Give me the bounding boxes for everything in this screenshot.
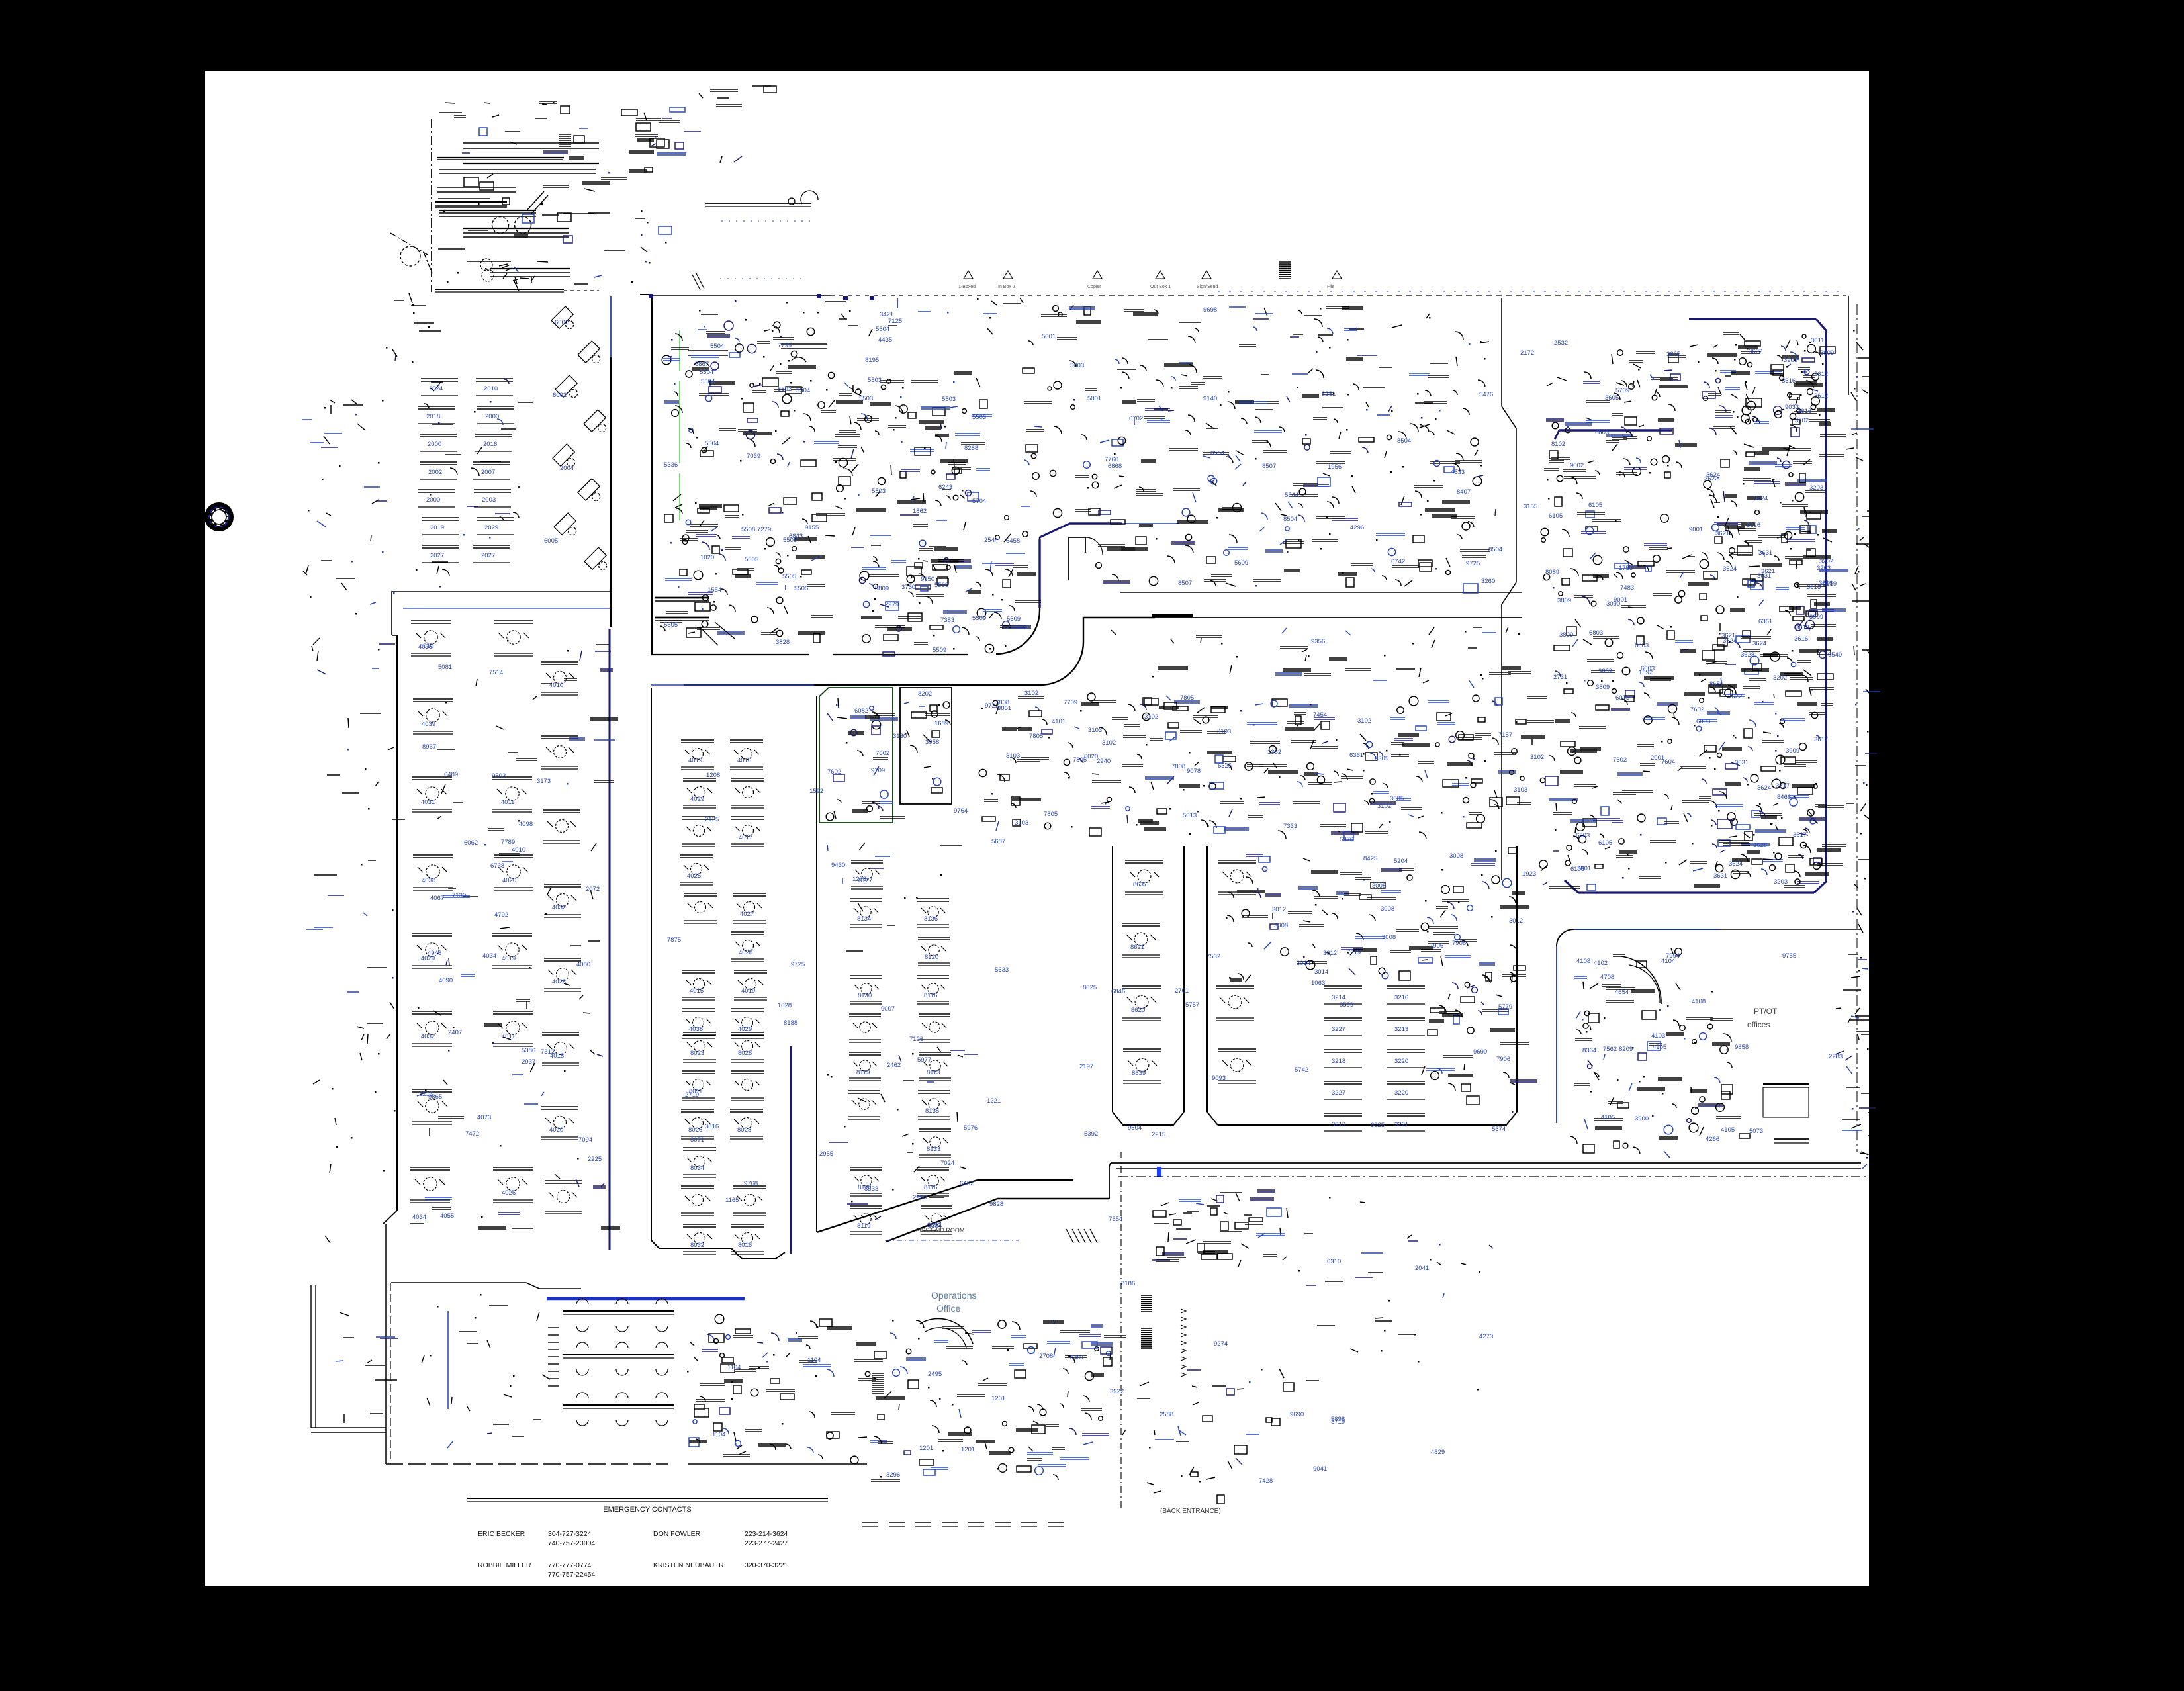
svg-text:4020: 4020 [549,1126,563,1134]
svg-text:Office: Office [936,1303,961,1314]
svg-text:9033: 9033 [1785,404,1799,411]
svg-text:3809: 3809 [1559,631,1573,639]
svg-text:7039: 7039 [747,453,760,460]
svg-text:5509: 5509 [934,582,948,589]
svg-text:3617: 3617 [1796,624,1809,631]
svg-text:4101: 4101 [1052,718,1066,725]
svg-text:5392: 5392 [1084,1130,1098,1138]
svg-text:7906: 7906 [1452,940,1466,947]
svg-text:5503: 5503 [859,395,873,402]
svg-text:1862: 1862 [913,508,927,515]
svg-text:7805: 7805 [1029,733,1043,740]
svg-text:8102: 8102 [1551,441,1565,448]
svg-text:offices: offices [1747,1020,1770,1029]
svg-text:8188: 8188 [784,1019,797,1027]
svg-text:320-370-3221: 320-370-3221 [745,1561,788,1569]
svg-text:PT/OT: PT/OT [1754,1007,1778,1016]
svg-text:9502: 9502 [492,772,506,780]
svg-text:7532: 7532 [1206,953,1220,960]
svg-text:3102: 3102 [1377,803,1391,810]
svg-text:7906: 7906 [1496,1056,1510,1063]
svg-text:4031: 4031 [421,799,435,806]
svg-text:5073: 5073 [1749,1128,1763,1135]
svg-text:4105: 4105 [1601,1114,1615,1121]
svg-text:3909: 3909 [1809,614,1823,621]
svg-text:9690: 9690 [1290,1411,1304,1418]
svg-text:3809: 3809 [1596,684,1610,691]
svg-text:ROBBIE MILLER: ROBBIE MILLER [478,1561,531,1569]
svg-text:1020: 1020 [700,554,714,561]
svg-text:9828: 9828 [989,1201,1003,1208]
svg-text:6489: 6489 [444,771,458,778]
svg-text:3605: 3605 [1666,351,1680,358]
svg-text:5509: 5509 [1007,616,1021,623]
svg-text:6105: 6105 [1549,512,1563,520]
svg-text:2027: 2027 [430,552,444,559]
svg-text:9140: 9140 [1203,395,1217,402]
svg-text:8120: 8120 [925,954,938,961]
svg-text:4019: 4019 [502,955,516,962]
svg-text:6003: 6003 [1635,642,1649,649]
svg-text:8533: 8533 [864,1185,878,1193]
svg-text:3220: 3220 [1394,1089,1408,1097]
svg-text:2937: 2937 [522,1058,535,1066]
svg-text:7483: 7483 [1620,584,1634,592]
svg-text:3624: 3624 [1706,471,1720,479]
svg-text:9690: 9690 [1473,1048,1487,1056]
svg-text:3103: 3103 [1514,786,1527,794]
svg-text:6846: 6846 [1111,988,1125,995]
svg-text:7554: 7554 [1109,1216,1122,1223]
svg-text:EMERGENCY CONTACTS: EMERGENCY CONTACTS [603,1506,691,1514]
svg-text:304-727-3224: 304-727-3224 [548,1530,592,1538]
svg-text:5504: 5504 [705,440,719,447]
svg-text:3103: 3103 [1088,727,1102,734]
svg-text:3624: 3624 [1754,495,1768,502]
svg-text:5742: 5742 [1295,1066,1308,1074]
svg-text:9002: 9002 [1570,462,1584,469]
svg-text:9504: 9504 [1128,1124,1142,1132]
svg-text:3014: 3014 [1297,960,1310,967]
svg-text:1063: 1063 [1311,980,1325,987]
svg-text:7799: 7799 [778,342,792,349]
svg-text:4019: 4019 [688,757,702,764]
svg-text:3809: 3809 [1598,668,1612,675]
svg-text:7219: 7219 [1347,949,1361,956]
svg-text:7428: 7428 [1259,1477,1273,1485]
svg-text:4015: 4015 [690,987,704,995]
svg-text:6803: 6803 [1595,429,1609,436]
svg-text:4533: 4533 [1451,469,1465,476]
svg-text:6843: 6843 [789,533,803,540]
svg-text:8364: 8364 [1582,1047,1596,1054]
svg-text:4105: 4105 [1721,1126,1735,1134]
svg-text:3616: 3616 [1794,635,1808,643]
svg-text:3828: 3828 [776,639,790,646]
svg-text:3103: 3103 [1006,753,1020,760]
svg-text:6868: 6868 [1108,463,1122,470]
svg-text:3760: 3760 [901,584,915,591]
svg-text:3958: 3958 [925,739,939,746]
svg-text:8407: 8407 [1457,488,1471,496]
svg-text:3213: 3213 [1394,1026,1408,1033]
svg-text:8202: 8202 [918,690,932,698]
svg-text:8639: 8639 [1132,1070,1146,1077]
svg-text:6105: 6105 [1598,839,1612,846]
svg-text:8116: 8116 [924,992,937,999]
svg-text:4108: 4108 [1692,998,1706,1005]
svg-text:4080: 4080 [576,961,590,968]
svg-text:2701: 2701 [1175,987,1189,995]
svg-text:4026: 4026 [502,1189,516,1197]
svg-text:8025: 8025 [1083,984,1097,991]
svg-text:3624: 3624 [1752,640,1766,647]
svg-text:3260: 3260 [1481,578,1495,585]
svg-text:3622: 3622 [1728,693,1742,700]
svg-text:9722: 9722 [985,702,999,709]
svg-text:7805: 7805 [1180,694,1194,702]
svg-text:2003: 2003 [482,496,496,504]
svg-text:3102: 3102 [1102,739,1116,747]
svg-text:2588: 2588 [1160,1411,1173,1418]
svg-text:1165: 1165 [725,1197,739,1204]
svg-text:4034: 4034 [412,1214,426,1221]
svg-text:2000: 2000 [428,441,441,448]
svg-text:File: File [1327,285,1334,289]
svg-text:3622: 3622 [1749,348,1762,355]
svg-text:4067: 4067 [430,895,444,902]
svg-text:3612: 3612 [1814,371,1828,378]
svg-text:7760: 7760 [1105,456,1118,463]
svg-text:2004: 2004 [560,465,574,472]
svg-text:8867: 8867 [695,361,709,368]
svg-text:9041: 9041 [1313,1465,1327,1473]
svg-text:9150: 9150 [921,576,934,583]
svg-text:7312: 7312 [541,1048,555,1056]
svg-text:3227: 3227 [1332,1026,1345,1033]
svg-text:2197: 2197 [1079,1063,1093,1070]
svg-text:6361: 6361 [1349,752,1363,759]
svg-text:3221: 3221 [1394,1121,1408,1128]
svg-text:1592: 1592 [1639,669,1653,676]
svg-text:6062: 6062 [464,839,478,846]
svg-text:5001: 5001 [1087,395,1101,402]
svg-text:8034: 8034 [690,1165,704,1172]
svg-text:1554: 1554 [707,586,721,594]
svg-text:3220: 3220 [1394,1058,1408,1065]
svg-text:2018: 2018 [426,413,440,420]
svg-text:8621: 8621 [1130,944,1144,951]
svg-text:3071: 3071 [690,1136,704,1144]
svg-text:9219: 9219 [1823,580,1837,588]
svg-text:9768: 9768 [744,1180,758,1187]
svg-text:1-Boxed: 1-Boxed [958,285,976,289]
svg-text:5336: 5336 [664,461,678,469]
svg-text:6803: 6803 [1576,832,1590,839]
svg-text:5476: 5476 [1479,391,1493,398]
svg-text:9809: 9809 [875,585,889,592]
svg-text:6458: 6458 [1006,537,1020,545]
svg-text:5503: 5503 [942,396,956,403]
svg-text:Sign/Send: Sign/Send [1197,285,1218,289]
svg-text:6025: 6025 [1371,1122,1385,1129]
svg-text:1208: 1208 [706,772,720,779]
svg-text:1104: 1104 [807,1357,821,1364]
svg-text:3202: 3202 [1819,558,1833,565]
svg-text:2000: 2000 [485,413,499,420]
svg-text:1923: 1923 [1522,870,1536,878]
svg-text:4032: 4032 [421,1033,435,1040]
svg-text:3624: 3624 [1723,565,1737,572]
svg-text:4019: 4019 [741,987,755,995]
svg-text:9007: 9007 [881,1005,895,1013]
svg-text:5779: 5779 [1498,1003,1512,1011]
svg-text:4103: 4103 [1651,1032,1665,1040]
svg-text:6001: 6001 [555,319,569,326]
svg-text:2001: 2001 [1651,754,1664,762]
svg-text:3909: 3909 [1784,357,1797,364]
svg-text:5709: 5709 [1615,387,1629,394]
svg-text:4273: 4273 [1479,1333,1493,1340]
svg-text:3631: 3631 [1713,872,1727,880]
svg-text:3014: 3014 [1314,968,1328,976]
svg-text:4034: 4034 [482,952,496,960]
svg-text:1201: 1201 [961,1446,975,1453]
svg-text:7602: 7602 [1613,756,1627,764]
svg-text:5503: 5503 [972,414,986,421]
svg-text:3616: 3616 [1797,408,1811,415]
svg-text:8504: 8504 [1283,516,1297,523]
svg-text:4090: 4090 [439,977,453,984]
svg-text:1689: 1689 [934,720,948,727]
svg-text:8133: 8133 [927,1146,940,1153]
svg-text:2950: 2950 [913,1194,927,1201]
svg-text:9093: 9093 [1212,1075,1226,1082]
svg-text:5504: 5504 [876,326,889,333]
svg-text:6003: 6003 [1615,694,1629,702]
svg-text:4102: 4102 [1594,960,1608,967]
svg-text:7130: 7130 [452,892,466,899]
svg-text:8195: 8195 [865,357,879,364]
svg-text:6020: 6020 [1084,753,1098,760]
svg-text:3173: 3173 [537,778,551,785]
svg-text:8023: 8023 [737,1126,751,1134]
svg-text:4011: 4011 [501,799,514,806]
svg-text:6005: 6005 [544,537,558,545]
svg-text:7125: 7125 [888,318,902,325]
svg-text:5704: 5704 [972,498,986,505]
svg-text:3624: 3624 [1757,784,1771,792]
svg-text:3617: 3617 [1793,831,1807,839]
svg-text:9155: 9155 [805,524,819,531]
svg-text:5898: 5898 [1331,1416,1345,1423]
svg-text:7279: 7279 [757,526,771,533]
svg-text:9430: 9430 [831,862,845,869]
svg-text:3155: 3155 [1524,503,1537,510]
svg-text:8023: 8023 [690,1050,704,1057]
svg-text:5001: 5001 [1042,333,1056,340]
svg-text:5504: 5504 [710,343,724,350]
svg-text:3202: 3202 [1795,417,1809,424]
svg-text:4017: 4017 [739,834,752,841]
svg-text:3851: 3851 [997,705,1011,712]
svg-text:4708: 4708 [1600,974,1614,981]
svg-text:8119: 8119 [856,1069,870,1076]
svg-text:8401: 8401 [1070,1354,1084,1361]
svg-text:8967: 8967 [422,743,436,751]
svg-text:8136: 8136 [924,915,938,923]
svg-text:5081: 5081 [438,664,452,671]
svg-text:3102: 3102 [1530,754,1544,761]
svg-text:2041: 2041 [1415,1265,1429,1272]
svg-text:3900: 3900 [1635,1115,1649,1122]
svg-text:4029: 4029 [690,796,704,803]
svg-text:2532: 2532 [1554,340,1568,347]
svg-text:7906: 7906 [1430,942,1443,950]
svg-text:4098: 4098 [519,821,533,828]
svg-text:4038: 4038 [422,877,435,884]
svg-text:(BACK ENTRANCE): (BACK ENTRANCE) [1160,1508,1221,1515]
svg-text:3008: 3008 [1381,905,1394,913]
svg-text:2544: 2544 [984,537,998,544]
svg-text:3103: 3103 [1217,728,1231,735]
svg-text:8288: 8288 [964,445,978,452]
svg-text:3617: 3617 [1776,782,1790,790]
svg-text:4108: 4108 [1576,958,1590,965]
svg-text:3012: 3012 [1509,917,1523,925]
svg-text:1201: 1201 [991,1395,1005,1402]
svg-text:3103: 3103 [1015,819,1028,827]
svg-text:6310: 6310 [1327,1258,1341,1265]
svg-text:9001: 9001 [1689,526,1703,533]
svg-text:2172: 2172 [1520,349,1534,357]
svg-text:4028: 4028 [552,978,566,985]
svg-text:8209: 8209 [1619,1046,1633,1053]
svg-text:770-757-22454: 770-757-22454 [548,1571,595,1578]
svg-text:8305: 8305 [1375,755,1388,762]
svg-text:1592: 1592 [809,788,823,795]
svg-text:7472: 7472 [465,1130,479,1138]
svg-text:4829: 4829 [1431,1449,1445,1456]
svg-text:2940: 2940 [1097,758,1111,765]
svg-text:6243: 6243 [938,484,952,491]
svg-text:6803: 6803 [1589,629,1603,637]
svg-text:3008: 3008 [1382,934,1396,941]
svg-text:2708: 2708 [1039,1353,1053,1360]
svg-text:4266: 4266 [1706,1136,1719,1143]
svg-text:8119: 8119 [857,1222,870,1230]
svg-text:8186: 8186 [1121,1280,1135,1287]
svg-text:5976: 5976 [964,1124,978,1132]
svg-text:8116: 8116 [924,1184,937,1191]
svg-text:3617: 3617 [1814,736,1828,743]
svg-text:9078: 9078 [1187,768,1201,775]
svg-text:9755: 9755 [1782,952,1796,960]
svg-text:8113: 8113 [927,1069,940,1076]
svg-text:7805: 7805 [1044,811,1058,818]
svg-text:2016: 2016 [483,441,497,448]
svg-text:4654: 4654 [1615,989,1629,996]
svg-text:4296: 4296 [1350,524,1364,531]
svg-text:1104: 1104 [712,1431,725,1438]
svg-text:5509: 5509 [933,647,946,654]
svg-text:3631: 3631 [1758,549,1772,557]
svg-text:3203: 3203 [1809,484,1823,492]
svg-text:5633: 5633 [995,966,1009,974]
svg-text:3628: 3628 [1753,842,1767,849]
svg-text:8028: 8028 [738,1050,752,1057]
svg-text:2407: 2407 [448,1029,462,1036]
svg-text:5757: 5757 [1185,1001,1199,1009]
svg-text:8026: 8026 [688,1126,702,1134]
svg-text:1028: 1028 [778,1002,792,1009]
svg-text:5504: 5504 [796,387,810,394]
svg-text:8089: 8089 [1545,569,1559,576]
svg-text:3090: 3090 [1606,600,1620,608]
svg-text:5504: 5504 [701,378,715,385]
svg-text:8507: 8507 [1178,580,1192,587]
svg-text:3203: 3203 [1817,565,1831,572]
svg-text:2283: 2283 [1829,1053,1843,1060]
svg-text:4035: 4035 [418,643,432,651]
svg-text:1753: 1753 [1619,565,1633,572]
svg-text:5687: 5687 [991,838,1005,845]
svg-text:3628: 3628 [1741,651,1754,659]
svg-text:1201: 1201 [919,1445,933,1452]
svg-text:1956: 1956 [1328,463,1342,471]
svg-text:5503: 5503 [872,488,886,495]
svg-text:6742: 6742 [1391,558,1405,565]
svg-text:5370: 5370 [1340,836,1353,843]
svg-text:740-757-23004: 740-757-23004 [548,1539,595,1547]
svg-text:4055: 4055 [440,1212,454,1220]
svg-text:3816: 3816 [705,1123,719,1130]
svg-text:Operations: Operations [931,1290,976,1301]
svg-text:6462: 6462 [960,1180,974,1187]
svg-text:2892: 2892 [927,1222,941,1229]
svg-text:5504: 5504 [700,369,713,376]
svg-text:4032: 4032 [552,904,566,911]
svg-text:5977: 5977 [917,1056,931,1064]
svg-text:3130: 3130 [893,733,907,740]
svg-text:5505: 5505 [782,573,796,580]
svg-text:3216: 3216 [1394,994,1408,1001]
svg-text:2215: 2215 [1152,1131,1165,1138]
svg-text:3102: 3102 [1357,717,1371,725]
svg-text:1221: 1221 [987,1097,1001,1105]
svg-text:8135: 8135 [925,1107,939,1115]
svg-text:8032: 8032 [690,1242,704,1249]
svg-text:4792: 4792 [494,911,508,919]
svg-text:3922: 3922 [1110,1388,1124,1395]
svg-text:2955: 2955 [819,1150,833,1158]
svg-text:8620: 8620 [1131,1007,1145,1014]
svg-text:6738: 6738 [490,862,504,870]
svg-text:2462: 2462 [887,1062,901,1069]
svg-text:4946: 4946 [428,950,441,957]
svg-text:3612: 3612 [1814,392,1828,400]
svg-text:3213: 3213 [1332,1121,1345,1128]
svg-text:5609: 5609 [1234,559,1248,567]
svg-text:7126: 7126 [909,1036,923,1043]
svg-text:8504: 8504 [1397,437,1411,445]
svg-text:7808: 7808 [1171,763,1185,770]
svg-text:2002: 2002 [428,469,442,476]
svg-text:Out Box 1: Out Box 1 [1150,285,1171,289]
svg-text:3008: 3008 [1274,922,1288,929]
svg-text:6325: 6325 [1218,762,1232,770]
svg-text:3012: 3012 [1323,950,1337,957]
